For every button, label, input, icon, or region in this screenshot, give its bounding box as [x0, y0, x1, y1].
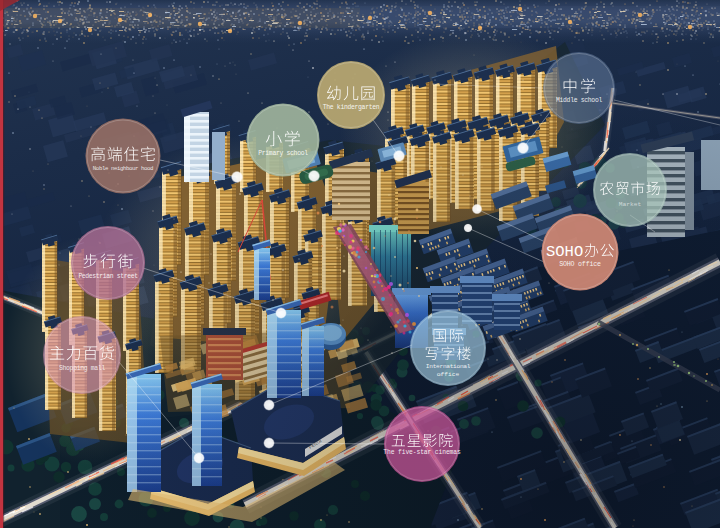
svg-text:Shopping mall: Shopping mall: [59, 365, 105, 372]
svg-text:SOHO office: SOHO office: [559, 261, 601, 268]
svg-text:office: office: [437, 371, 460, 378]
svg-text:The five-star cinemas: The five-star cinemas: [383, 449, 461, 456]
svg-text:Market: Market: [619, 201, 642, 208]
svg-text:The kindergarten: The kindergarten: [323, 104, 380, 111]
svg-text:Middle school: Middle school: [556, 97, 602, 104]
svg-text:Primary school: Primary school: [258, 150, 308, 157]
svg-text:SOHO: SOHO: [546, 243, 583, 261]
svg-text:Pedestrian street: Pedestrian street: [78, 273, 138, 280]
svg-text:International: International: [426, 363, 471, 370]
svg-text:Noble neighbour hood: Noble neighbour hood: [93, 165, 153, 172]
